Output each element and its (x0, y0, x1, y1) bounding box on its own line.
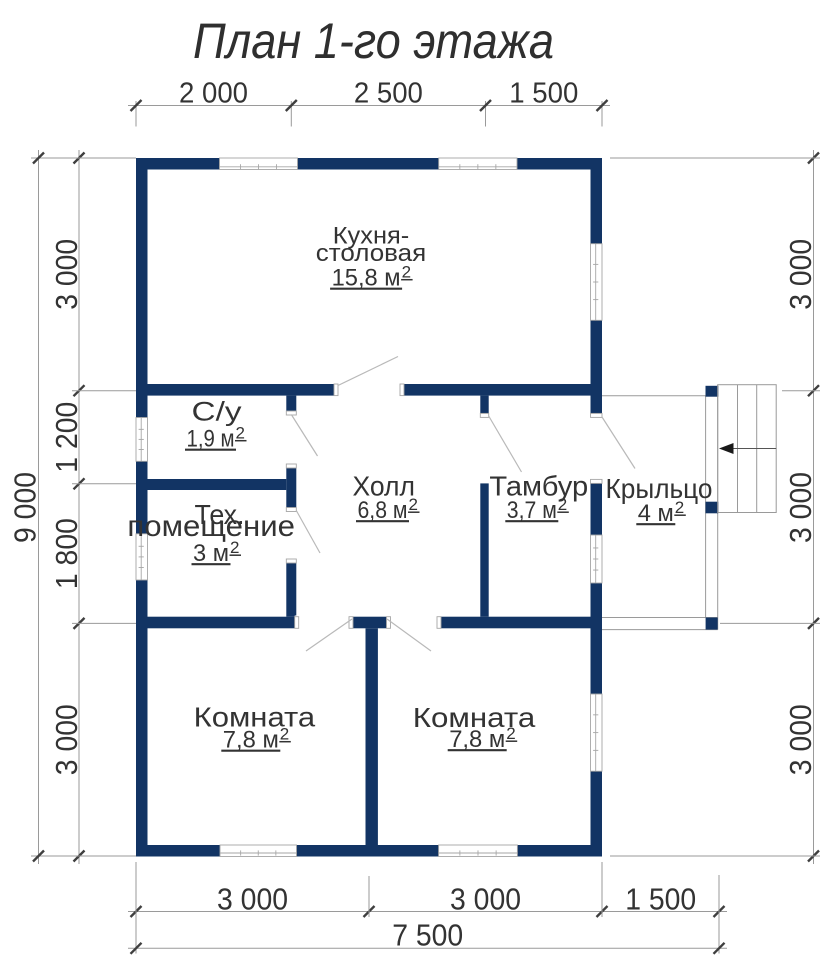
svg-text:7,8 м: 7,8 м (223, 727, 279, 754)
svg-text:3 000: 3 000 (217, 882, 288, 917)
svg-text:3 м: 3 м (193, 540, 229, 567)
svg-text:1 800: 1 800 (49, 518, 84, 589)
svg-text:9 000: 9 000 (8, 472, 43, 543)
svg-text:2: 2 (558, 495, 567, 514)
svg-text:3 000: 3 000 (783, 472, 818, 543)
svg-text:План 1-го этажа: План 1-го этажа (193, 13, 554, 69)
svg-text:1 200: 1 200 (49, 402, 84, 473)
svg-text:3 000: 3 000 (450, 882, 521, 917)
svg-text:2: 2 (675, 498, 684, 517)
svg-text:2: 2 (236, 424, 245, 443)
svg-text:1,9 м: 1,9 м (187, 426, 235, 453)
svg-text:7 500: 7 500 (392, 918, 463, 953)
svg-text:2: 2 (506, 724, 515, 743)
svg-text:2: 2 (230, 538, 239, 557)
svg-text:С/у: С/у (192, 397, 243, 427)
svg-text:1 500: 1 500 (509, 78, 578, 110)
svg-text:6,8 м: 6,8 м (358, 497, 408, 524)
svg-text:2 000: 2 000 (179, 78, 248, 110)
svg-text:3,7 м: 3,7 м (507, 497, 557, 524)
svg-text:15,8 м: 15,8 м (332, 265, 401, 292)
svg-text:7,8 м: 7,8 м (449, 726, 505, 753)
svg-text:2: 2 (409, 495, 418, 514)
svg-text:3 000: 3 000 (783, 239, 818, 310)
svg-text:3 000: 3 000 (783, 704, 818, 775)
svg-text:3 000: 3 000 (49, 239, 84, 310)
svg-text:2 500: 2 500 (354, 78, 423, 110)
svg-text:помещение: помещение (127, 510, 295, 543)
svg-text:2: 2 (280, 725, 289, 744)
svg-text:4 м: 4 м (638, 500, 674, 527)
svg-text:2: 2 (402, 263, 411, 282)
svg-text:3 000: 3 000 (49, 704, 84, 775)
svg-text:1 500: 1 500 (625, 882, 696, 917)
